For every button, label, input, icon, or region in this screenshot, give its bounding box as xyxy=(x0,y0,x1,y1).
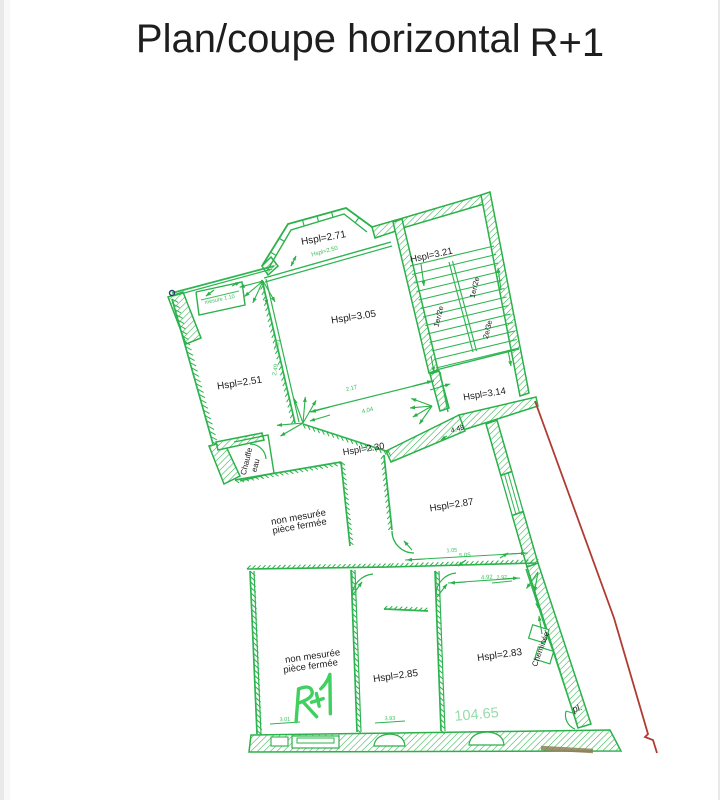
svg-text:3.01: 3.01 xyxy=(279,717,290,724)
svg-text:4.92: 4.92 xyxy=(481,575,494,582)
svg-text:2.92: 2.92 xyxy=(496,575,507,582)
svg-text:3.93: 3.93 xyxy=(384,716,395,723)
svg-text:1.05: 1.05 xyxy=(446,548,457,555)
svg-text:5.05: 5.05 xyxy=(459,553,472,560)
